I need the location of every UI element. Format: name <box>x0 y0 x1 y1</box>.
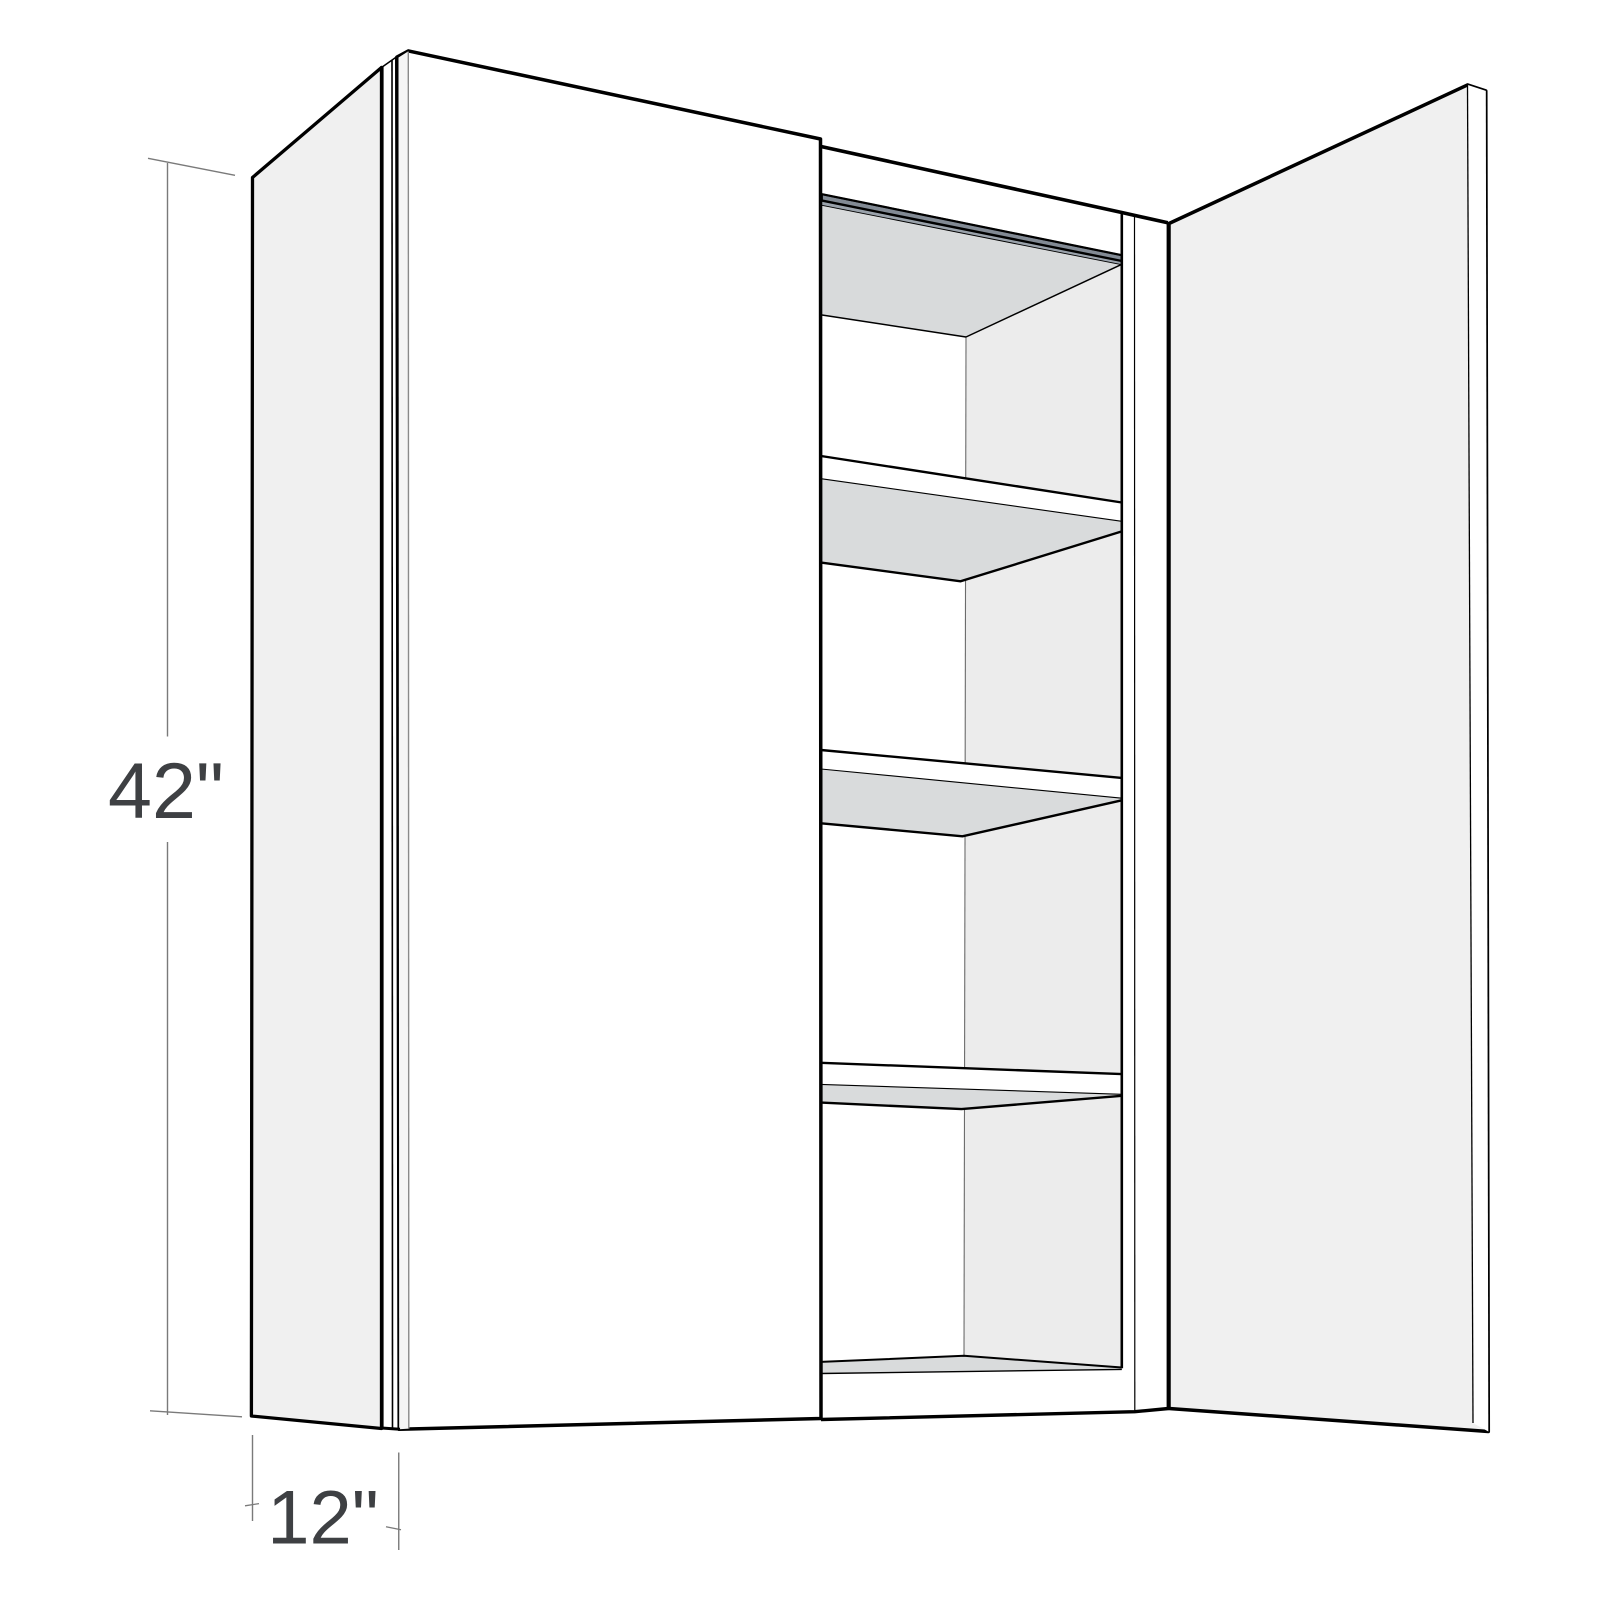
svg-text:12": 12" <box>267 1476 379 1561</box>
svg-text:42": 42" <box>108 746 224 835</box>
